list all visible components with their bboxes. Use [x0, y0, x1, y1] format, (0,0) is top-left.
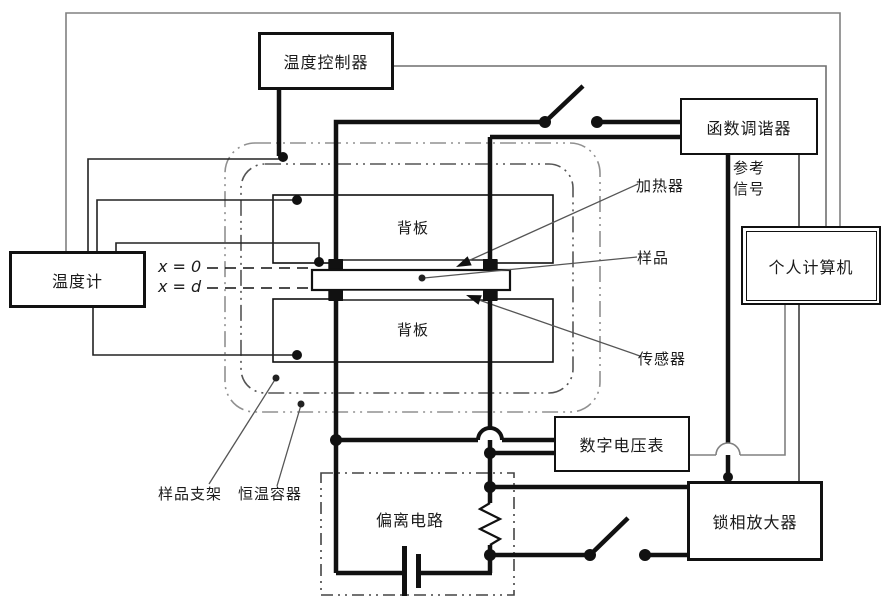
thermometer-label: 温度计 — [52, 268, 103, 292]
resistor — [480, 503, 500, 545]
voltmeter-to-pc-line-b — [740, 305, 785, 455]
function-generator-box: 函数调谐器 — [680, 98, 818, 155]
backplane-top-label: 背板 — [378, 217, 448, 238]
wire-hop-pc-line — [716, 443, 740, 455]
thermostat-container-annotation: 恒温容器 — [238, 483, 302, 504]
sample-annotation: 样品 — [637, 247, 669, 268]
lockin-amplifier-box: 锁相放大器 — [687, 481, 823, 561]
backplane-bottom-label: 背板 — [378, 319, 448, 340]
personal-computer-box: 个人计算机 — [741, 226, 881, 305]
digital-voltmeter-box: 数字电压表 — [554, 416, 690, 472]
reference-signal-annotation: 参考 信号 — [733, 158, 765, 200]
personal-computer-label: 个人计算机 — [768, 254, 853, 278]
temp-controller-label: 温度控制器 — [283, 49, 368, 73]
sample-holder-pointer-dot — [273, 375, 280, 382]
heater-annotation: 加热器 — [636, 175, 684, 196]
bias-circuit-label: 偏离电路 — [355, 507, 465, 531]
wire-hop-voltmeter — [478, 428, 502, 440]
battery-plate-short — [416, 554, 421, 588]
function-generator-label: 函数调谐器 — [706, 115, 791, 139]
schematic-diagram: 温度控制器 函数调谐器 温度计 个人计算机 数字电压表 锁相放大器 背板 背板 … — [0, 0, 895, 614]
x-zero-label: x = 0 — [158, 257, 201, 276]
personal-computer-inner-frame: 个人计算机 — [746, 231, 877, 301]
thermometer-box: 温度计 — [9, 251, 146, 308]
heater-strip — [329, 260, 497, 270]
sensor-terminal-left — [329, 289, 343, 301]
sample-pointer-dot — [419, 275, 426, 282]
lockin-amplifier-label: 锁相放大器 — [712, 509, 797, 533]
thermostat-pointer-dot — [298, 401, 305, 408]
temp-controller-box: 温度控制器 — [258, 32, 394, 90]
x-plane-dashes — [207, 268, 310, 288]
sample-holder-annotation: 样品支架 — [158, 483, 222, 504]
battery-plate-long — [402, 546, 407, 596]
sensor-terminal-right — [483, 289, 497, 301]
sensor-annotation: 传感器 — [638, 348, 686, 369]
x-d-label: x = d — [158, 277, 201, 296]
digital-voltmeter-label: 数字电压表 — [579, 432, 664, 456]
